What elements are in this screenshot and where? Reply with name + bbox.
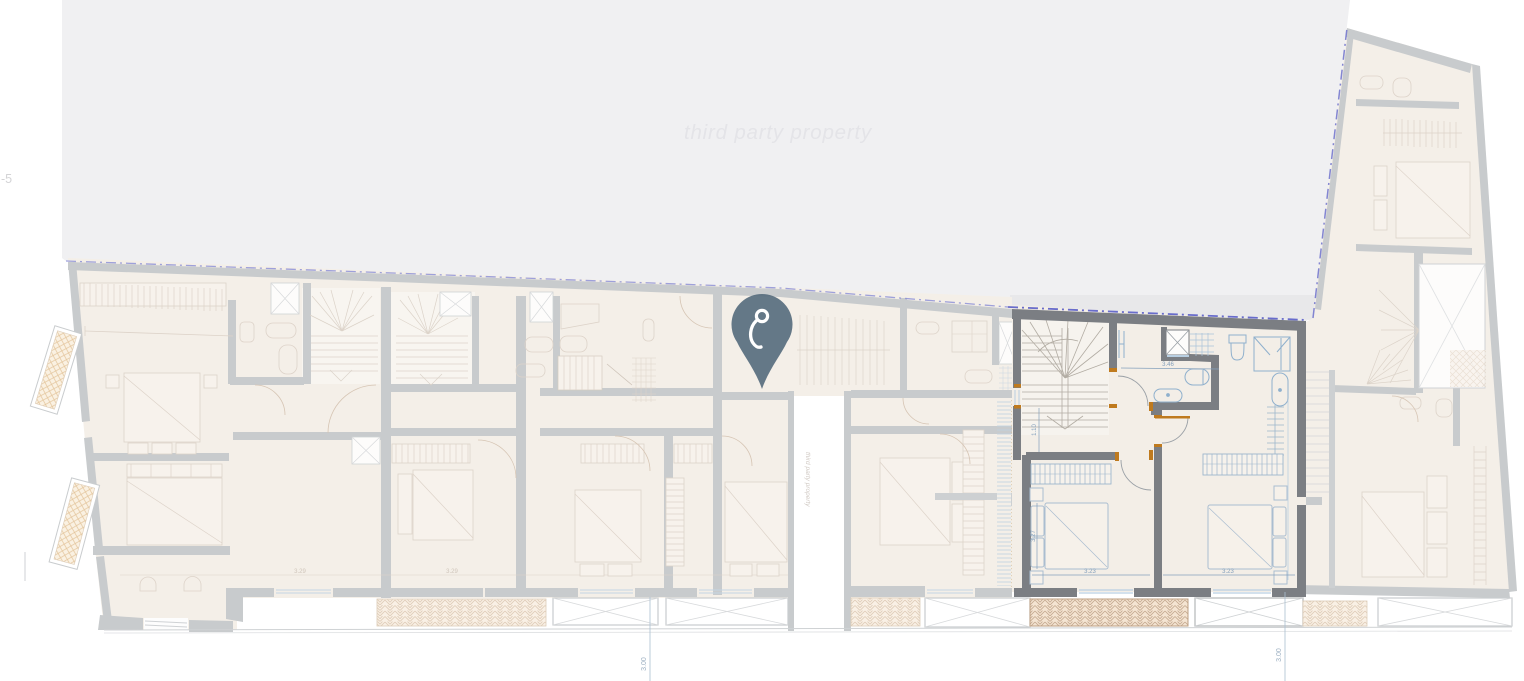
svg-text:3.27: 3.27	[1031, 530, 1037, 542]
svg-text:3.23: 3.23	[1084, 569, 1096, 575]
svg-text:3.23: 3.23	[1222, 569, 1234, 575]
svg-text:third party property: third party property	[684, 121, 873, 144]
svg-text:-5: -5	[1, 172, 12, 186]
svg-text:3.00: 3.00	[641, 657, 648, 671]
svg-text:3.46: 3.46	[1162, 362, 1174, 368]
svg-text:third party property: third party property	[804, 452, 811, 507]
svg-text:1.10: 1.10	[1032, 424, 1038, 436]
svg-text:3.00: 3.00	[1276, 648, 1283, 662]
svg-text:3.29: 3.29	[446, 569, 458, 575]
svg-text:3.29: 3.29	[294, 569, 306, 575]
